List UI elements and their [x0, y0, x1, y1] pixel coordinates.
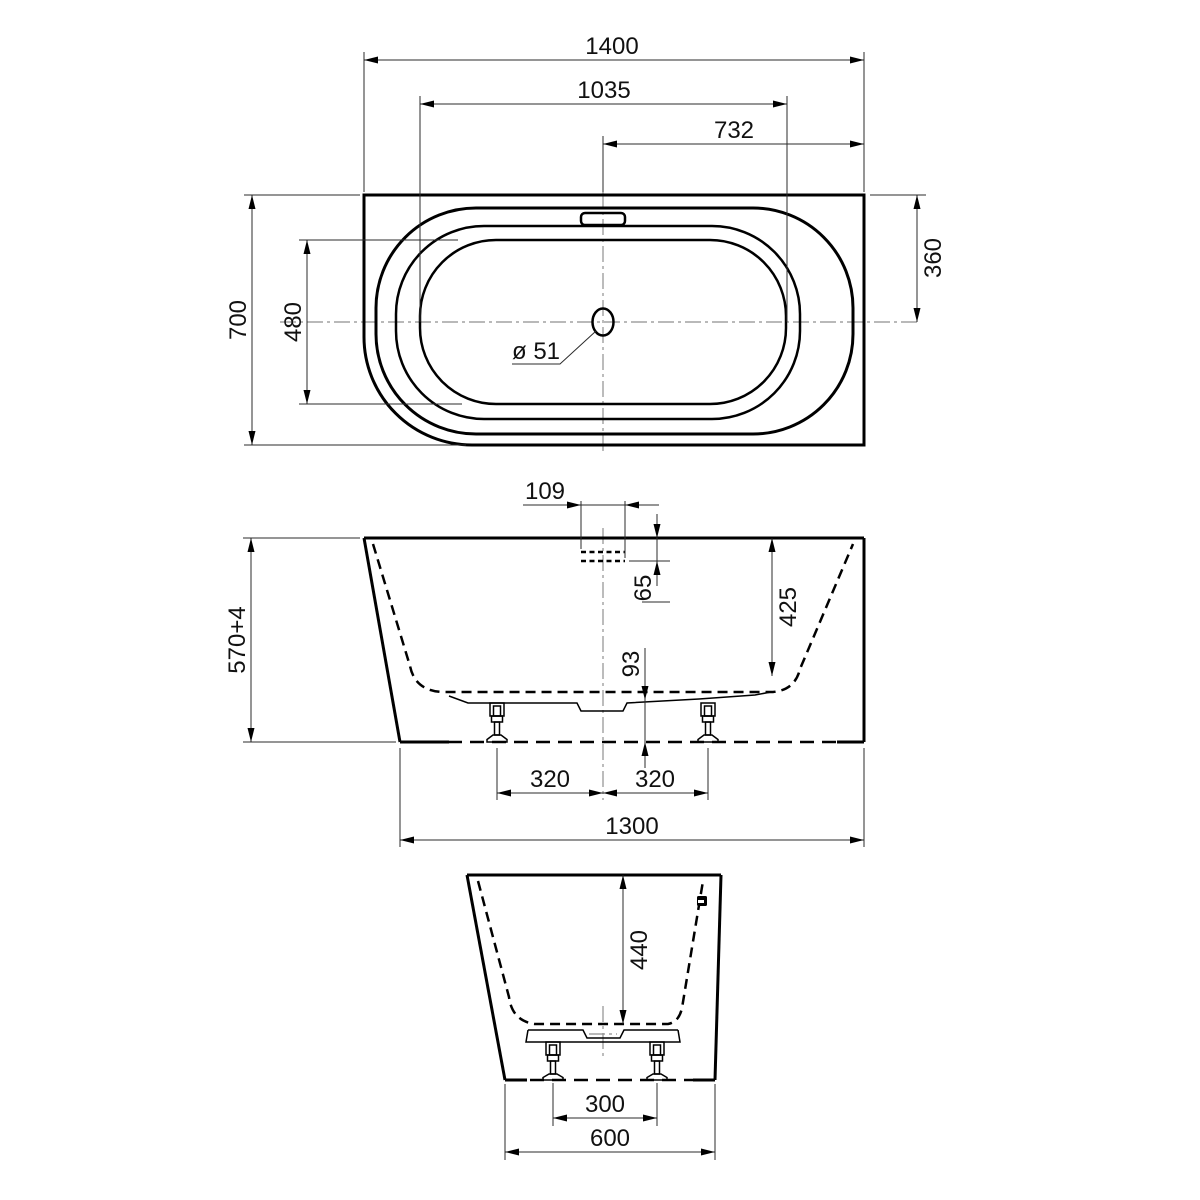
bathtub-dimension-drawing: ø 51 1400 1035 732 700 480 360: [0, 0, 1200, 1200]
dim-inner-depth-front: 425: [775, 587, 802, 627]
dim-top-to-center: 360: [920, 238, 947, 278]
dim-overall-height: 570+4: [224, 606, 251, 673]
dim-base-length: 1300: [605, 813, 658, 840]
drain-diameter-label: ø 51: [512, 338, 560, 365]
dim-basin-width: 480: [280, 302, 307, 342]
dim-overflow-width: 109: [525, 478, 565, 505]
dim-inner-depth-side: 440: [626, 930, 653, 970]
dim-overall-width: 700: [225, 300, 252, 340]
dim-overall-length: 1400: [585, 33, 638, 60]
technical-drawing-page: ø 51 1400 1035 732 700 480 360: [0, 0, 1200, 1200]
dim-clearance: 93: [618, 651, 645, 678]
dim-foot-right: 320: [635, 766, 675, 793]
dim-center-to-right: 732: [714, 117, 754, 144]
dim-base-width: 600: [590, 1125, 630, 1152]
dim-overflow-depth: 65: [630, 575, 657, 602]
dim-basin-length: 1035: [577, 77, 630, 104]
dim-foot-spacing: 300: [585, 1091, 625, 1118]
overflow-hole-side: [697, 896, 707, 906]
background: [0, 0, 1200, 1200]
dim-foot-left: 320: [530, 766, 570, 793]
